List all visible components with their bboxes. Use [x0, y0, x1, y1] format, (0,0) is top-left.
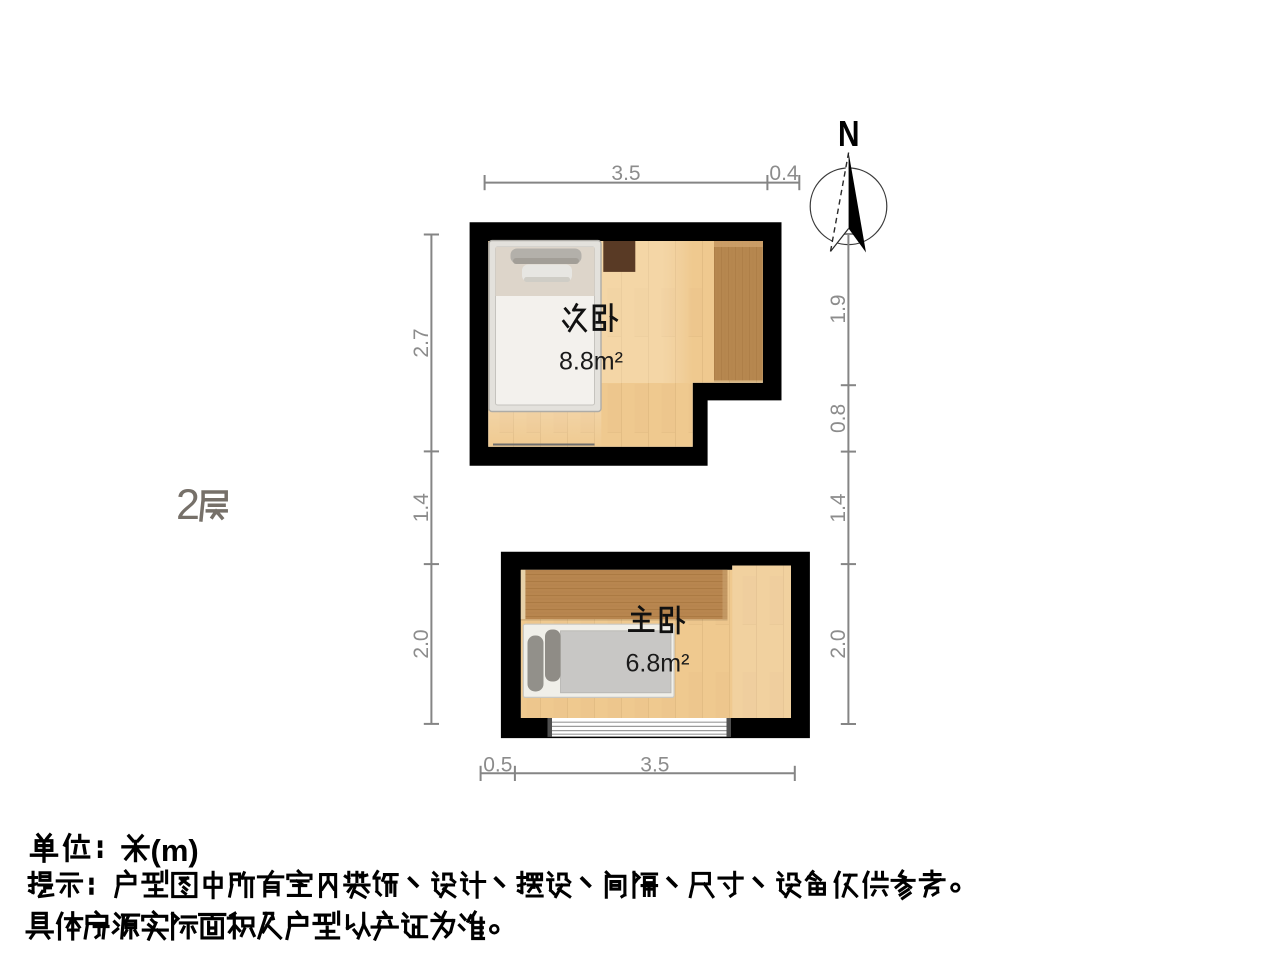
svg-text:0.8: 0.8 — [827, 404, 850, 433]
svg-text:6.8m²: 6.8m² — [626, 650, 690, 678]
svg-text:2.0: 2.0 — [410, 629, 433, 658]
svg-text:2.7: 2.7 — [410, 328, 433, 357]
svg-text:1.4: 1.4 — [410, 493, 433, 523]
svg-text:2: 2 — [176, 481, 200, 529]
svg-text:0.5: 0.5 — [483, 754, 512, 777]
svg-text:3.5: 3.5 — [611, 162, 640, 185]
svg-text:1.4: 1.4 — [827, 493, 850, 523]
svg-text:1.9: 1.9 — [827, 294, 850, 323]
svg-text:8.8m²: 8.8m² — [559, 348, 623, 376]
svg-text:3.5: 3.5 — [640, 754, 669, 777]
svg-text:0.4: 0.4 — [769, 162, 799, 185]
svg-text:(m): (m) — [151, 833, 199, 868]
svg-text:N: N — [838, 113, 860, 154]
svg-text:2.0: 2.0 — [827, 629, 850, 658]
